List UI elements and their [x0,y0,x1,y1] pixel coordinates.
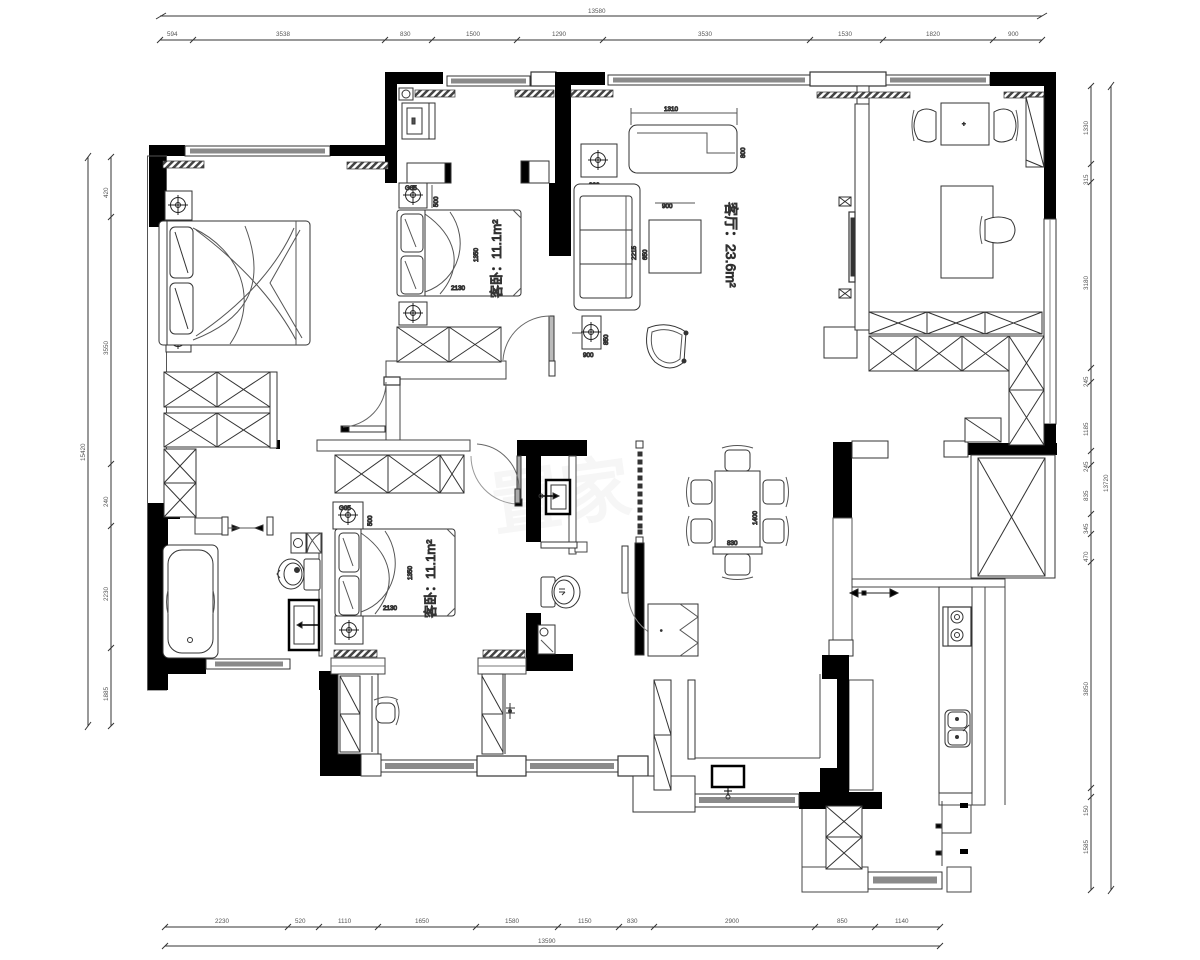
svg-text:3180: 3180 [1083,275,1090,290]
svg-text:G05: G05 [405,185,417,192]
svg-text:900: 900 [662,203,673,210]
svg-text:2230: 2230 [103,586,110,601]
svg-text:420: 420 [103,187,110,198]
svg-text:850: 850 [837,918,848,925]
svg-text:315: 315 [1083,174,1090,185]
svg-text:500: 500 [367,515,374,526]
svg-text:1310: 1310 [664,106,679,113]
svg-text:345: 345 [1083,523,1090,534]
svg-text:1185: 1185 [1083,422,1090,436]
svg-text:1110: 1110 [338,918,352,925]
svg-text:850: 850 [603,334,610,345]
svg-text:830: 830 [400,31,411,38]
svg-text:1150: 1150 [578,918,592,925]
svg-text:3530: 3530 [698,31,713,38]
svg-text:客卧：11.1m²: 客卧：11.1m² [489,219,504,298]
svg-text:3538: 3538 [276,31,291,38]
svg-text:13590: 13590 [538,938,556,945]
svg-text:2130: 2130 [451,285,466,292]
svg-text:13720: 13720 [1103,474,1110,492]
svg-text:594: 594 [167,31,178,38]
svg-text:3850: 3850 [1083,681,1090,696]
svg-text:1585: 1585 [1083,839,1090,854]
svg-text:13580: 13580 [588,8,606,15]
svg-text:830: 830 [627,918,638,925]
svg-text:900: 900 [1008,31,1019,38]
svg-text:835: 835 [1083,490,1090,501]
svg-text:520: 520 [295,918,306,925]
svg-text:1650: 1650 [415,918,430,925]
svg-text:150: 150 [1083,805,1090,816]
svg-text:1350: 1350 [407,565,414,580]
svg-text:1530: 1530 [838,31,853,38]
svg-text:245: 245 [1083,461,1090,472]
svg-text:650: 650 [642,249,649,260]
svg-text:470: 470 [1083,551,1090,562]
svg-text:830: 830 [727,540,738,547]
svg-text:2130: 2130 [383,605,398,612]
svg-text:客卧：11.1m²: 客卧：11.1m² [423,539,438,618]
svg-text:2900: 2900 [725,918,740,925]
svg-text:800: 800 [740,147,747,158]
svg-text:900: 900 [583,352,594,359]
svg-text:1290: 1290 [552,31,567,38]
svg-text:1820: 1820 [926,31,941,38]
svg-text:3550: 3550 [103,340,110,355]
svg-text:2230: 2230 [215,918,230,925]
svg-text:245: 245 [1083,376,1090,387]
svg-text:客厅：23.6m²: 客厅：23.6m² [723,202,739,288]
svg-text:1400: 1400 [752,510,759,525]
svg-text:1350: 1350 [473,247,480,262]
svg-text:+: + [962,121,966,128]
svg-text:1580: 1580 [505,918,520,925]
svg-text:240: 240 [103,496,110,507]
svg-text:15420: 15420 [80,443,87,461]
svg-text:1885: 1885 [103,686,110,701]
svg-text:2215: 2215 [631,245,638,260]
svg-text:G05: G05 [339,505,351,512]
svg-text:500: 500 [433,196,440,207]
svg-text:1330: 1330 [1083,120,1090,135]
svg-text:1140: 1140 [895,918,909,925]
svg-text:1500: 1500 [466,31,481,38]
